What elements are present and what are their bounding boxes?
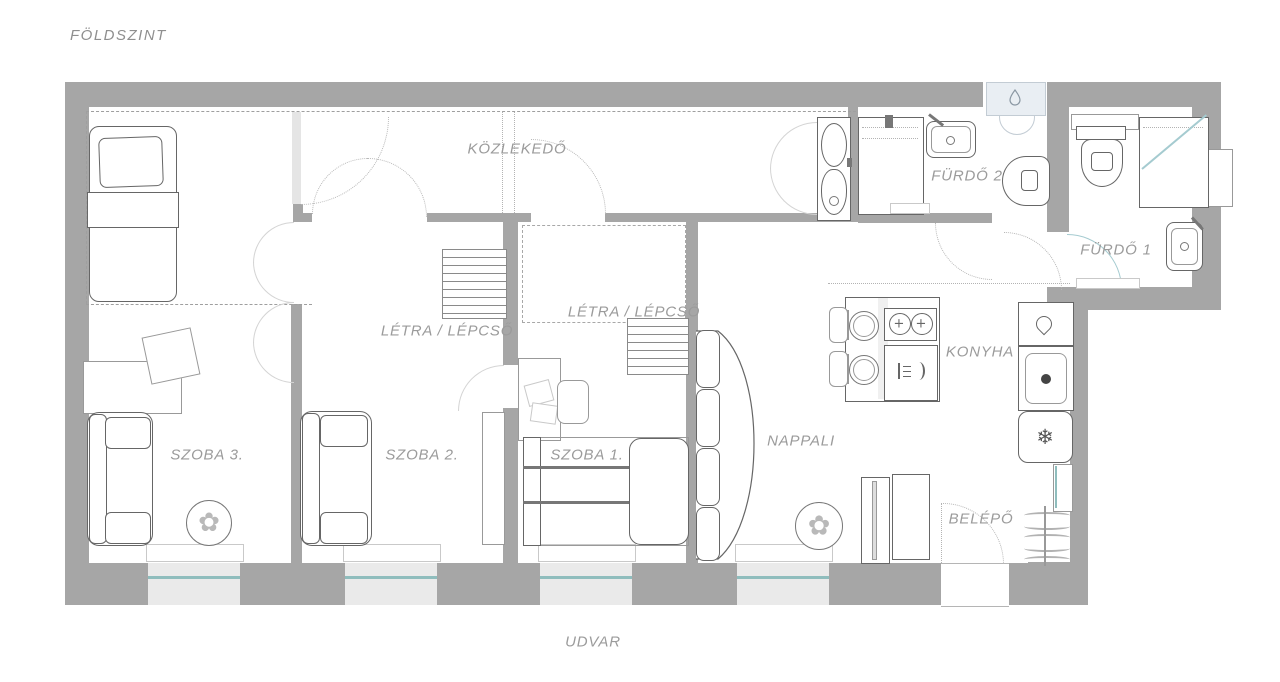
shower: [858, 117, 924, 215]
stairs: [442, 249, 507, 319]
chair: [557, 380, 589, 424]
washbasin: [821, 123, 847, 167]
shower-glass: [1143, 127, 1203, 128]
mattress: [629, 438, 689, 545]
room-label-szoba2: SZOBA 2.: [385, 447, 458, 464]
fork: [847, 310, 849, 340]
window-szoba2: [345, 563, 437, 605]
entrance-door-leaf: [941, 503, 942, 563]
room-label-szoba3: SZOBA 3.: [170, 447, 243, 464]
toilet-seat: [1091, 152, 1113, 171]
room-label-furdo1: FÜRDŐ 1: [1080, 242, 1151, 259]
room-label-kozlekedo: KÖZLEKEDŐ: [468, 141, 567, 158]
wc-door: [770, 168, 817, 215]
wc-door: [770, 122, 817, 169]
window-sill: [538, 544, 636, 562]
shower-glass: [862, 138, 918, 139]
entrance-opening: [941, 563, 1009, 607]
chair: [829, 307, 848, 343]
sofa-cushion: [320, 415, 368, 447]
oven-icon: [913, 362, 925, 380]
loft-outline: [502, 112, 503, 213]
sofa-cushion: [696, 330, 720, 388]
plate-inner: [853, 315, 875, 337]
radiator-fin: [1024, 534, 1070, 541]
window-glass: [148, 576, 240, 579]
oven-icon: [903, 371, 911, 372]
stairs: [627, 318, 689, 375]
sofa-cushion: [696, 448, 720, 506]
courtyard-label: UDVAR: [565, 634, 621, 651]
cabinet-mirror: [872, 481, 877, 560]
room-label-furdo2: FÜRDŐ 2: [931, 168, 1002, 185]
loft-outline: [86, 111, 856, 112]
oven-icon: [903, 376, 911, 377]
sofa-cushion: [320, 512, 368, 544]
page-title: FÖLDSZINT: [70, 27, 167, 44]
shower-head: [885, 115, 893, 128]
window-sill-right: [1205, 149, 1233, 207]
wardrobe: [482, 412, 505, 545]
bath-mat: [890, 203, 930, 214]
window-nappali: [737, 563, 829, 605]
sofa-cushion: [696, 507, 720, 561]
window-szoba3: [148, 563, 240, 605]
wall-stub: [293, 204, 303, 214]
fork: [847, 354, 849, 384]
closet-door: [253, 222, 294, 263]
closet-door: [253, 342, 294, 383]
window-glass: [540, 576, 632, 579]
bath-mat: [1076, 278, 1140, 289]
radiator-pipe: [1044, 506, 1046, 566]
wall-furdo2-right: [1047, 82, 1069, 232]
wall-corner-block: [1028, 562, 1088, 605]
plant-icon: ✿: [198, 508, 220, 538]
closet-door: [253, 262, 294, 303]
door-swing: [368, 158, 427, 217]
window-sill: [343, 544, 441, 562]
radiator-fin: [1024, 545, 1070, 552]
sink-drain: [1180, 242, 1189, 251]
window-glass: [737, 576, 829, 579]
bed-board: [523, 437, 541, 546]
door-swing: [935, 223, 992, 280]
towel-rail-bar: [1055, 466, 1057, 508]
door-swing: [1004, 232, 1062, 290]
plant-icon: ✿: [808, 511, 831, 542]
wall-corridor-seg: [293, 213, 312, 222]
pillow: [98, 136, 164, 188]
room-label-nappali: NAPPALI: [767, 433, 835, 450]
toilet-seat: [1021, 170, 1038, 191]
sofa-cushion: [696, 389, 720, 447]
toilet: [821, 169, 847, 215]
flame-icon: [1008, 89, 1022, 107]
chair: [829, 351, 848, 387]
outlet: [847, 158, 852, 167]
room-label-konyha: KONYHA: [946, 344, 1014, 361]
wall-szoba2-szoba1-lower: [503, 408, 518, 565]
plate-inner: [853, 359, 875, 381]
oven-icon: [903, 366, 911, 367]
toilet-drain: [829, 196, 839, 206]
door-leaf: [292, 112, 301, 204]
radiator-fin: [1024, 512, 1070, 519]
window-sill: [146, 544, 244, 562]
oven-icon: [898, 363, 900, 379]
burner-icon: +: [894, 317, 905, 332]
burner-icon: +: [916, 317, 927, 332]
door-swing: [458, 365, 504, 411]
desk-paper: [530, 402, 558, 424]
sofa-cushion: [105, 512, 151, 544]
radiator-fin: [1024, 556, 1070, 563]
stairs-label: LÉTRA / LÉPCSŐ: [381, 323, 513, 340]
loft-outline: [514, 112, 515, 213]
oven: [884, 345, 938, 401]
radiator-fin: [1024, 523, 1070, 530]
bed-blanket: [87, 192, 179, 228]
sink-drain: [1041, 374, 1051, 384]
room-label-szoba1: SZOBA 1.: [550, 447, 623, 464]
sofa-cushion: [105, 417, 151, 449]
sofa-back: [302, 413, 320, 544]
cabinet: [892, 474, 930, 560]
chair: [142, 327, 201, 384]
floor-plan: FÖLDSZINT UDVAR: [0, 0, 1280, 682]
toilet-tank: [1076, 126, 1126, 140]
room-label-belepo: BELÉPŐ: [949, 511, 1014, 528]
window-szoba1: [540, 563, 632, 605]
window-glass: [345, 576, 437, 579]
closet-door: [253, 302, 294, 343]
stairs-label: LÉTRA / LÉPCSŐ: [568, 304, 700, 321]
fridge-icon: ❄: [1036, 425, 1054, 449]
sink-drain: [946, 136, 955, 145]
